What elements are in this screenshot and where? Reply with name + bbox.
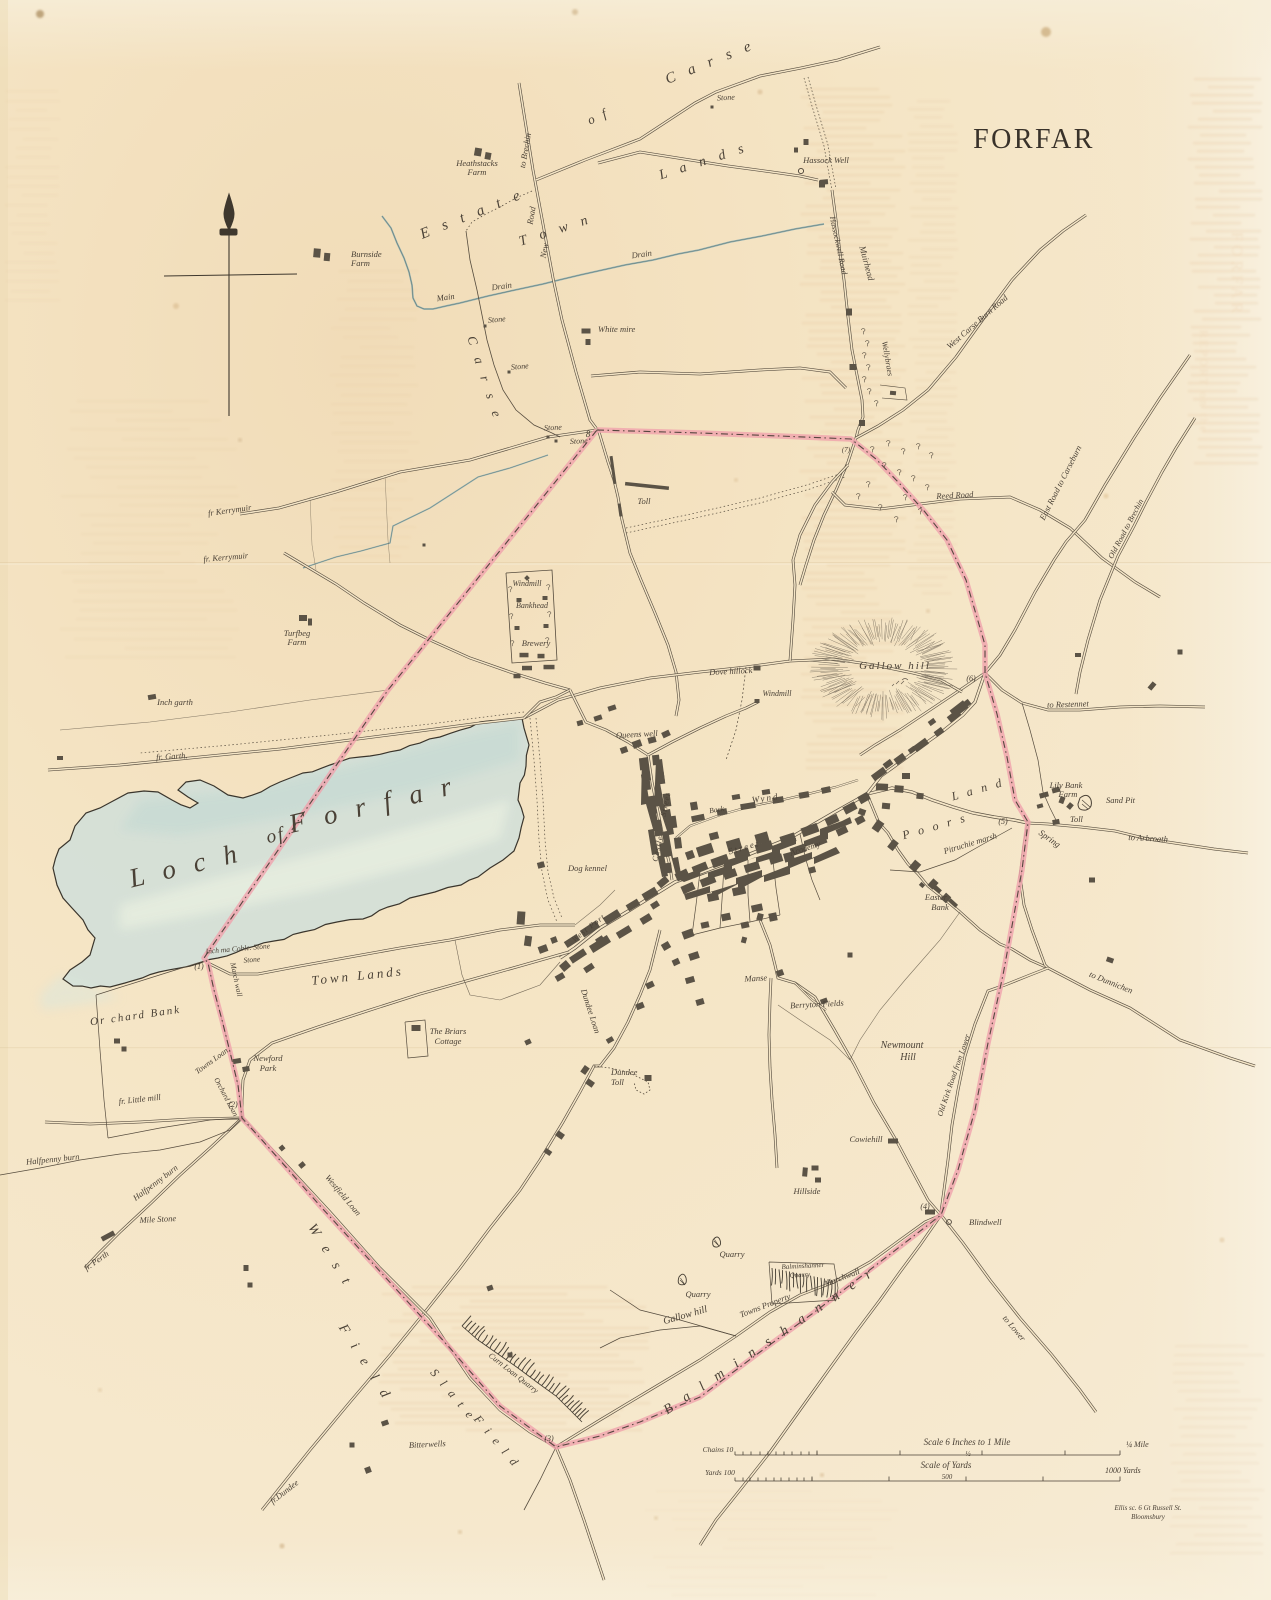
svg-text:REPORT on the: REPORT on the	[1197, 330, 1211, 434]
svg-text:½: ½	[965, 1450, 971, 1458]
svg-text:Brewery: Brewery	[522, 638, 551, 648]
svg-text:Windmill: Windmill	[763, 689, 793, 698]
svg-text:Scale of Yards: Scale of Yards	[921, 1460, 972, 1470]
svg-text:Manse: Manse	[743, 972, 767, 983]
svg-text:Quarry: Quarry	[685, 1289, 710, 1299]
svg-text:fr. Garth.: fr. Garth.	[156, 750, 188, 762]
svg-text:Bitterwells: Bitterwells	[409, 1438, 447, 1450]
svg-text:Toll: Toll	[638, 496, 652, 506]
svg-text:Stone: Stone	[544, 423, 563, 433]
svg-text:Scale 6 Inches to 1 Mile: Scale 6 Inches to 1 Mile	[924, 1437, 1011, 1447]
svg-text:Dundee: Dundee	[610, 1067, 638, 1077]
svg-text:Farm: Farm	[350, 258, 370, 268]
svg-text:Quarry: Quarry	[719, 1249, 744, 1259]
svg-text:¼ Mile: ¼ Mile	[1126, 1440, 1149, 1449]
svg-text:(7): (7)	[842, 446, 851, 454]
svg-text:Stone: Stone	[717, 93, 736, 103]
svg-text:8: 8	[586, 429, 591, 439]
svg-text:Windmill: Windmill	[513, 579, 543, 588]
svg-text:Hill: Hill	[899, 1052, 916, 1063]
svg-text:FORFAR: FORFAR	[1228, 232, 1245, 317]
svg-text:Hillside: Hillside	[793, 1186, 821, 1196]
svg-text:Stone: Stone	[488, 314, 507, 325]
svg-text:Farm: Farm	[1058, 789, 1078, 799]
svg-text:Quarry: Quarry	[789, 1270, 811, 1279]
svg-text:Chains 10: Chains 10	[703, 1445, 734, 1454]
svg-text:Cottage: Cottage	[435, 1036, 462, 1046]
svg-text:Newmount: Newmount	[880, 1040, 924, 1051]
svg-text:Inch garth: Inch garth	[156, 697, 193, 707]
svg-text:Newford: Newford	[253, 1053, 284, 1063]
svg-text:Bankhead: Bankhead	[516, 601, 549, 610]
svg-text:White mire: White mire	[598, 324, 635, 334]
svg-text:(1): (1)	[194, 962, 204, 971]
svg-text:(5): (5)	[998, 817, 1008, 826]
svg-text:Park: Park	[259, 1063, 277, 1073]
svg-text:Mile Stone: Mile Stone	[138, 1213, 176, 1225]
svg-text:(6): (6)	[966, 674, 976, 683]
svg-text:Toll: Toll	[1070, 814, 1084, 824]
svg-text:(3): (3)	[544, 1434, 554, 1443]
svg-text:(2): (2)	[228, 1100, 238, 1109]
svg-text:Bloomsbury: Bloomsbury	[1131, 1513, 1166, 1521]
svg-text:Ellis sc. 6 Gt Russell St.: Ellis sc. 6 Gt Russell St.	[1113, 1504, 1181, 1512]
svg-text:to Arbroath: to Arbroath	[1128, 832, 1168, 844]
svg-text:Hassock Well: Hassock Well	[802, 155, 849, 165]
svg-text:The Briars: The Briars	[430, 1026, 467, 1036]
svg-text:to Restennet: to Restennet	[1047, 698, 1090, 709]
svg-text:Farm: Farm	[287, 637, 307, 647]
svg-text:1000 Yards: 1000 Yards	[1105, 1466, 1141, 1475]
svg-text:Stone: Stone	[511, 361, 530, 372]
svg-text:FORFAR: FORFAR	[973, 124, 1095, 155]
svg-text:Gallow hill: Gallow hill	[859, 660, 931, 672]
svg-text:Toll: Toll	[611, 1077, 625, 1087]
svg-text:Sand Pit: Sand Pit	[1106, 795, 1136, 805]
svg-text:Bank: Bank	[931, 902, 949, 912]
svg-text:Easter: Easter	[924, 892, 948, 902]
svg-text:Yards 100: Yards 100	[705, 1468, 735, 1477]
svg-text:Farm: Farm	[467, 167, 487, 177]
svg-text:Stone: Stone	[243, 954, 261, 964]
svg-text:Cowiehill: Cowiehill	[849, 1134, 883, 1144]
svg-text:Blindwell: Blindwell	[969, 1217, 1002, 1227]
svg-text:Reed Road: Reed Road	[935, 489, 974, 501]
svg-text:Dog kennel: Dog kennel	[567, 863, 608, 873]
svg-text:500: 500	[942, 1473, 953, 1481]
svg-text:(4): (4)	[920, 1202, 930, 1211]
